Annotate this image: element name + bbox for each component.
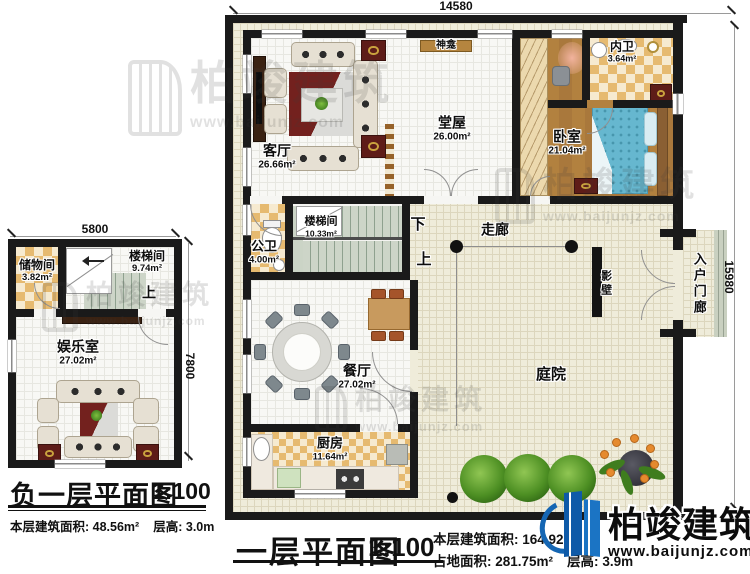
window: [262, 30, 302, 38]
wall: [8, 239, 182, 247]
sink: [591, 42, 607, 58]
door-gap: [250, 196, 282, 204]
stove: [336, 469, 364, 489]
kitchen-sink: [253, 437, 270, 461]
plant: [315, 97, 328, 110]
desk-chair: [552, 66, 570, 86]
window: [55, 460, 105, 468]
fruit: [640, 474, 649, 483]
dimension-width: 5800: [82, 222, 109, 236]
fruit: [646, 444, 655, 453]
corridor-column: [450, 240, 463, 253]
window: [243, 55, 251, 93]
basement-stats: 本层建筑面积: 48.56m² 层高: 3.0m: [10, 516, 214, 535]
room-label-ensuite: 内卫3.64m²: [608, 39, 637, 64]
side-table: [361, 40, 386, 61]
fruit: [606, 468, 615, 477]
dining-chair: [338, 344, 350, 360]
logo-mark: [540, 488, 606, 564]
watermark-logo-icon: [128, 60, 182, 136]
stair-flight-lower: [303, 241, 402, 276]
door-gap: [360, 424, 398, 432]
stair-arrow: [88, 260, 104, 262]
kitchen-appliance: [386, 444, 408, 465]
window: [478, 30, 512, 38]
armchair: [133, 398, 159, 424]
dimension-line: [233, 13, 731, 14]
armchair: [264, 68, 287, 98]
table-chair: [389, 289, 404, 299]
room-label-stairwell: 楼梯间10.33m²: [305, 215, 338, 238]
window: [366, 30, 406, 38]
room-label-courtyard: 庭院: [536, 366, 566, 384]
dimension-width: 14580: [439, 0, 472, 13]
dining-chair: [294, 304, 310, 316]
pillow: [644, 152, 657, 186]
door-gap: [587, 100, 613, 108]
wall: [512, 38, 520, 196]
pillow: [644, 112, 657, 146]
room-label-storage: 储物间3.82m²: [19, 258, 55, 284]
round-table: [283, 333, 321, 371]
dimension-line: [10, 236, 176, 237]
wardrobe: [520, 38, 548, 196]
sofa: [287, 146, 359, 171]
stair-arrow-head: [82, 256, 89, 266]
room-label-screen-wall: 影壁: [598, 270, 611, 298]
caption-underline: [8, 505, 206, 508]
dining-chair: [294, 388, 310, 400]
window: [243, 355, 251, 393]
brand-name: 柏竣建筑: [608, 496, 750, 548]
sofa: [291, 42, 355, 67]
table-chair: [389, 331, 404, 341]
room-label-stairwell-b: 楼梯间9.74m²: [129, 249, 165, 275]
stair-down-label: 下: [410, 216, 425, 234]
square-table: [368, 298, 410, 330]
basement-scale: 1:100: [152, 478, 211, 505]
cutting-board: [277, 468, 301, 488]
main-scale: 1:100: [368, 532, 435, 563]
window: [552, 30, 582, 38]
stair-up-label: 上: [142, 285, 156, 302]
room-label-kitchen: 厨房11.64m²: [313, 436, 348, 463]
bedroom-stool: [574, 178, 598, 194]
dimension-height: 7800: [183, 353, 197, 380]
fruit: [600, 450, 609, 459]
stair-up-label: 上: [416, 251, 431, 269]
corridor-line-v: [456, 246, 457, 426]
sofa: [56, 380, 140, 403]
room-label-hall: 堂屋26.00m²: [433, 115, 470, 144]
fruit: [630, 434, 639, 443]
room-label-bedroom: 卧室21.04m²: [548, 129, 585, 158]
wall: [660, 329, 696, 337]
side-table: [361, 135, 386, 158]
wall: [225, 15, 687, 23]
wall: [582, 38, 590, 100]
wall: [243, 30, 673, 38]
armchair: [37, 398, 59, 423]
window: [8, 340, 16, 372]
plant: [91, 410, 102, 421]
dining-chair: [254, 344, 266, 360]
fruit: [612, 438, 621, 447]
logo-tower: [564, 491, 582, 557]
logo-tower: [584, 499, 600, 557]
corridor-line-h: [456, 246, 572, 247]
door-gap: [424, 196, 478, 204]
corridor-column: [565, 240, 578, 253]
window: [243, 300, 251, 338]
armchair: [264, 104, 287, 134]
room-label-dining: 餐厅27.02m²: [338, 363, 375, 392]
sofa: [64, 436, 132, 458]
table-chair: [371, 331, 386, 341]
room-label-bath: 公卫4.00m²: [249, 239, 279, 266]
tv-screen: [256, 72, 262, 124]
wall: [225, 15, 233, 520]
wall: [174, 239, 182, 468]
floor-drain: [647, 41, 659, 53]
table-chair: [371, 289, 386, 299]
door-gap: [34, 309, 56, 317]
tree: [460, 455, 508, 503]
room-label-shrine: 神龛: [436, 40, 456, 52]
headboard: [657, 104, 668, 196]
floor-plan-sheet: 客厅26.66m² 堂屋26.00m² 神龛 卧室21.04m² 内卫3.64m…: [0, 0, 750, 574]
door-gap: [138, 309, 166, 317]
window: [243, 148, 251, 186]
caption-underline-thin: [8, 510, 206, 511]
wall: [660, 229, 696, 237]
room-label-living: 客厅26.66m²: [258, 143, 295, 172]
caption-underline: [233, 560, 443, 563]
room-label-porch: 入户门廊: [691, 252, 707, 316]
door-gap: [530, 196, 550, 204]
dimension-height: 15980: [722, 260, 736, 293]
wall: [402, 204, 410, 280]
window: [673, 94, 683, 114]
window: [295, 490, 345, 498]
brand-website: www.baijunjz.com: [608, 543, 750, 560]
room-label-recreation: 娱乐室27.02m²: [57, 339, 99, 368]
window: [243, 438, 251, 466]
room-label-corridor: 走廊: [481, 222, 509, 239]
fruit: [650, 460, 659, 469]
courtyard-column: [447, 492, 458, 503]
screen-divider: [385, 124, 394, 196]
wall: [243, 272, 410, 280]
wall: [285, 204, 293, 280]
